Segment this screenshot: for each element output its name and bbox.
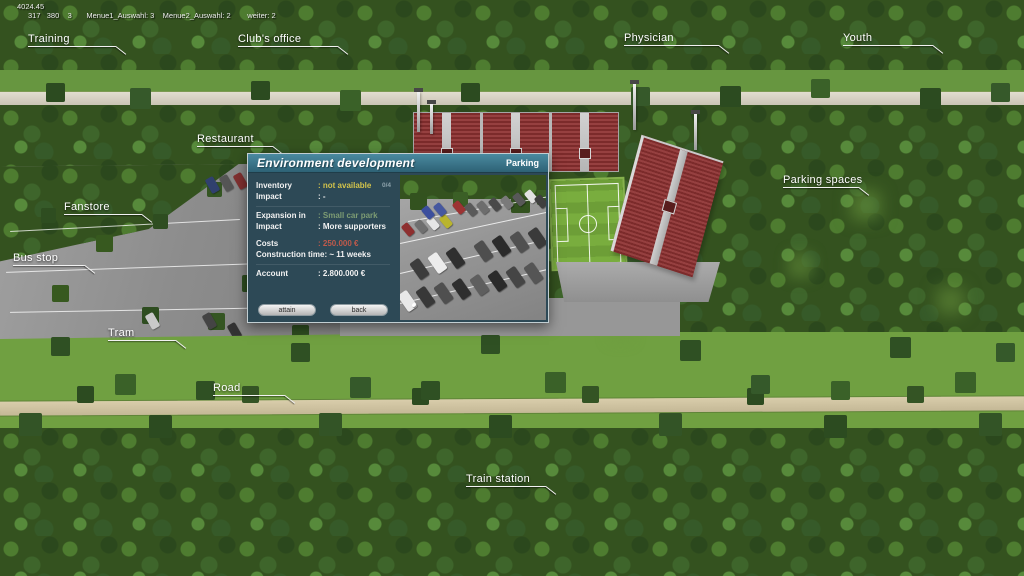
dialog-body: 0/4 Inventory : not available Impact : -… [248,173,548,322]
leader-line [783,187,859,188]
leader-line [108,340,176,341]
map-label-parking-spaces[interactable]: Parking spaces [783,174,862,186]
grass-band [0,332,1024,430]
stadium-pitch [550,179,625,269]
inventory-count: 0/4 [382,182,391,189]
dialog-title: Environment development [257,156,415,170]
map-label-fanstore[interactable]: Fanstore [64,201,110,213]
grass-strip-top [0,70,1024,94]
leader-line [843,45,933,46]
debug-readout-line2: 317 380 3 Menue1_Auswahl: 3 Menue2_Auswa… [28,11,276,20]
leader-line [213,395,285,396]
inventory-label: Inventory [256,181,318,191]
environment-development-dialog: Environment development Parking 0/4 Inve… [247,153,549,323]
grass-band-trees [0,332,1,333]
leader-line [28,46,116,47]
construction-label: Construction time [256,250,324,260]
divider [256,264,390,265]
impact-current-label: Impact [256,192,318,202]
floodlight-mast [417,92,420,132]
roadside-trees-top [0,84,1,85]
costs-value: : 250.000 € [318,239,358,249]
leader-line [466,486,546,487]
account-row: Account : 2.800.000 € [256,269,390,279]
inventory-row: Inventory : not available [256,181,390,191]
impact-new-value: : More supporters [318,222,386,232]
stadium-wall [556,262,720,302]
floodlight-mast [430,104,433,134]
forest-bottom [0,428,1024,576]
floodlight-mast [694,114,697,150]
dialog-header: Environment development Parking [248,154,548,173]
dialog-category: Parking [506,158,539,168]
expansion-row: Expansion in : Small car park [256,211,390,221]
soccer-ball [412,303,417,308]
expansion-value: : Small car park [318,211,378,221]
forest-clearings [0,0,1,1]
expansion-label: Expansion in [256,211,318,221]
attain-button[interactable]: attain [258,304,316,316]
account-label: Account [256,269,318,279]
map-label-physician[interactable]: Physician [624,32,674,44]
dialog-info-panel: 0/4 Inventory : not available Impact : -… [248,173,398,322]
map-label-restaurant[interactable]: Restaurant [197,133,254,145]
leader-line [197,146,273,147]
leader-line [13,265,85,266]
main-road [0,92,1024,105]
leader-line [64,214,142,215]
divider [256,206,390,207]
map-label-youth[interactable]: Youth [843,32,872,44]
leader-line [238,46,338,47]
impact-current-row: Impact : - [256,192,390,202]
inventory-value: : not available [318,181,371,191]
impact-current-value: : - [318,192,326,202]
map-label-road[interactable]: Road [213,382,241,394]
map-label-bus-stop[interactable]: Bus stop [13,252,58,264]
map-label-clubs-office[interactable]: Club's office [238,33,301,45]
floodlight-mast [633,84,636,130]
construction-row: Construction time : ~ 11 weeks [256,250,390,260]
parking-photo [400,175,546,320]
game-map: 4024.45 317 380 3 Menue1_Auswahl: 3 Menu… [0,0,1024,576]
map-label-tram[interactable]: Tram [108,327,134,339]
costs-row: Costs : 250.000 € [256,239,390,249]
leader-line [624,45,719,46]
map-label-training[interactable]: Training [28,33,70,45]
dialog-buttons: attain back [258,304,388,316]
construction-value: : ~ 11 weeks [324,250,370,260]
debug-readout-line1: 4024.45 [17,2,44,11]
map-label-train-station[interactable]: Train station [466,473,530,485]
impact-new-row: Impact : More supporters [256,222,390,232]
impact-new-label: Impact [256,222,318,232]
account-value: : 2.800.000 € [318,269,365,279]
back-button[interactable]: back [330,304,388,316]
costs-label: Costs [256,239,318,249]
